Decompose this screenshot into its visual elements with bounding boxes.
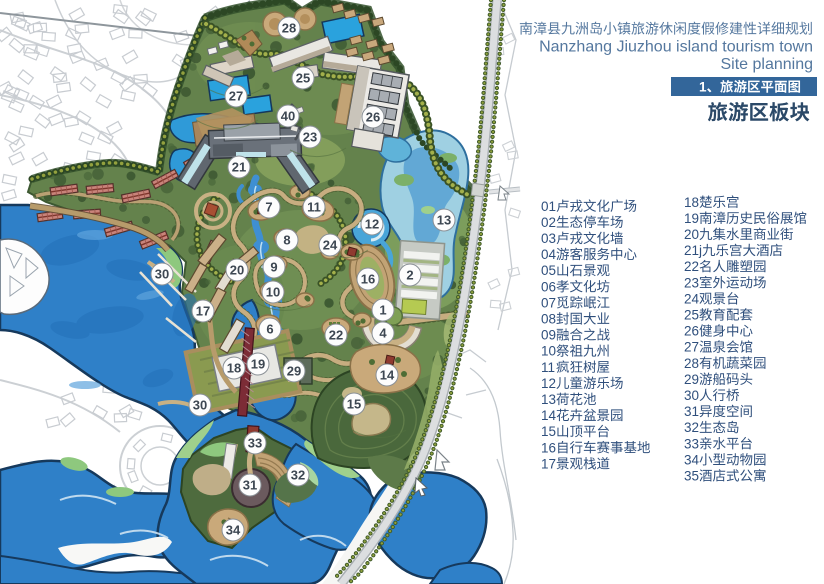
svg-text:29: 29 (287, 364, 301, 379)
svg-text:11: 11 (307, 200, 321, 215)
svg-text:22: 22 (684, 259, 699, 274)
svg-text:20: 20 (230, 263, 244, 278)
svg-text:06: 06 (541, 279, 556, 294)
svg-text:35: 35 (684, 469, 699, 484)
svg-text:12: 12 (365, 217, 379, 232)
svg-text:14: 14 (541, 408, 557, 423)
svg-text:33: 33 (684, 436, 699, 451)
svg-text:28: 28 (684, 356, 699, 371)
svg-text:29: 29 (684, 372, 699, 387)
svg-text:13: 13 (541, 392, 556, 407)
svg-text:8: 8 (283, 233, 290, 248)
svg-text:18: 18 (227, 361, 241, 376)
svg-text:27: 27 (229, 89, 243, 104)
svg-text:16: 16 (541, 440, 556, 455)
svg-text:10: 10 (266, 285, 280, 300)
svg-text:11: 11 (541, 360, 555, 375)
svg-text:20: 20 (684, 227, 699, 242)
svg-text:32: 32 (291, 468, 305, 483)
svg-text:08: 08 (541, 312, 556, 327)
svg-text:33: 33 (248, 436, 262, 451)
svg-text:Site planning: Site planning (720, 56, 813, 73)
svg-text:32: 32 (684, 420, 699, 435)
svg-text:Nanzhang Jiuzhou island touris: Nanzhang Jiuzhou island tourism town (539, 39, 813, 56)
svg-text:2: 2 (406, 268, 413, 283)
svg-text:01: 01 (541, 199, 556, 214)
svg-text:34: 34 (684, 452, 700, 467)
svg-text:31: 31 (243, 478, 257, 493)
svg-text:34: 34 (226, 523, 241, 538)
svg-text:6: 6 (266, 322, 273, 337)
svg-text:19: 19 (251, 357, 265, 372)
svg-text:21j: 21j (684, 243, 702, 258)
svg-text:16: 16 (361, 272, 375, 287)
svg-text:1: 1 (699, 80, 707, 95)
svg-text:07: 07 (541, 295, 556, 310)
svg-text:4: 4 (379, 326, 387, 341)
svg-text:30: 30 (684, 388, 699, 403)
svg-text:15: 15 (541, 424, 556, 439)
svg-text:15: 15 (347, 397, 361, 412)
svg-text:17: 17 (541, 456, 556, 471)
svg-text:24: 24 (684, 291, 700, 306)
svg-text:17: 17 (196, 304, 210, 319)
svg-text:12: 12 (541, 376, 556, 391)
svg-text:1: 1 (379, 303, 386, 318)
svg-text:13: 13 (437, 213, 451, 228)
svg-text:22: 22 (329, 328, 343, 343)
svg-text:21: 21 (232, 160, 246, 175)
svg-text:28: 28 (282, 21, 296, 36)
svg-text:09: 09 (541, 328, 556, 343)
svg-text:18: 18 (684, 195, 699, 210)
svg-text:25: 25 (296, 71, 310, 86)
svg-text:9: 9 (270, 260, 277, 275)
svg-text:04: 04 (541, 247, 557, 262)
svg-text:23: 23 (684, 275, 699, 290)
svg-text:26: 26 (366, 110, 380, 125)
svg-text:19: 19 (684, 211, 699, 226)
svg-text:14: 14 (380, 368, 395, 383)
svg-text:03: 03 (541, 231, 556, 246)
svg-text:26: 26 (684, 324, 699, 339)
svg-text:02: 02 (541, 215, 556, 230)
svg-text:05: 05 (541, 263, 556, 278)
svg-text:40: 40 (281, 109, 295, 124)
svg-text:23: 23 (303, 130, 317, 145)
svg-text:7: 7 (265, 200, 272, 215)
svg-text:10: 10 (541, 344, 556, 359)
svg-text:30: 30 (193, 398, 207, 413)
svg-text:30: 30 (155, 267, 169, 282)
svg-text:24: 24 (323, 238, 338, 253)
svg-text:31: 31 (684, 404, 699, 419)
svg-text:25: 25 (684, 308, 699, 323)
svg-text:27: 27 (684, 340, 699, 355)
